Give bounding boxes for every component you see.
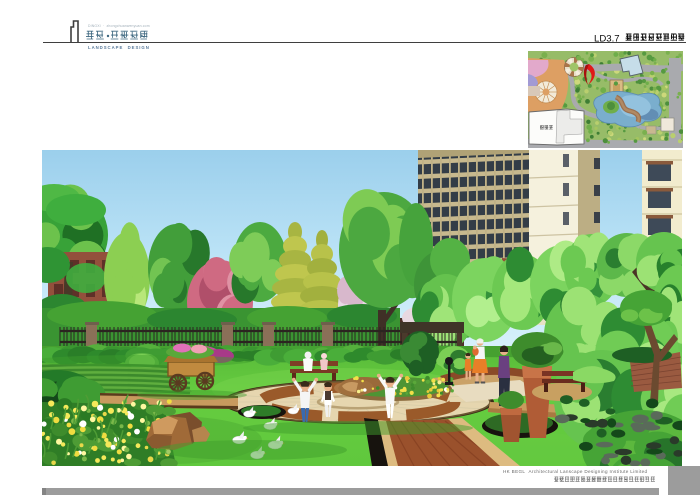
- svg-text:LD3.7: LD3.7: [594, 33, 620, 44]
